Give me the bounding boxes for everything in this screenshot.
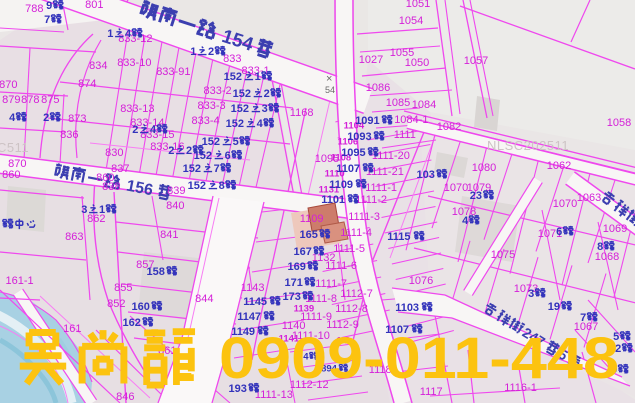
svg-text:874: 874 <box>78 78 96 90</box>
svg-text:7: 7 <box>44 14 50 26</box>
svg-text:1111-4: 1111-4 <box>340 227 372 239</box>
svg-text:1112-7: 1112-7 <box>340 288 373 300</box>
svg-text:152: 152 <box>188 180 206 192</box>
svg-text:2: 2 <box>186 145 192 157</box>
svg-text:3: 3 <box>262 103 268 115</box>
svg-text:1085: 1085 <box>386 97 410 109</box>
svg-text:161: 161 <box>63 323 81 335</box>
svg-text:1080: 1080 <box>472 162 496 174</box>
svg-text:2: 2 <box>264 88 270 100</box>
svg-text:7: 7 <box>214 163 220 175</box>
svg-text:833-4: 833-4 <box>192 115 220 127</box>
svg-text:4: 4 <box>257 118 264 130</box>
svg-text:1: 1 <box>190 46 196 58</box>
svg-text:839: 839 <box>167 185 185 197</box>
svg-text:4: 4 <box>9 112 16 124</box>
svg-text:4: 4 <box>462 215 469 227</box>
svg-text:NLSC202511: NLSC202511 <box>487 138 569 153</box>
svg-text:7: 7 <box>580 312 586 324</box>
svg-text:1109: 1109 <box>329 179 353 191</box>
svg-text:840: 840 <box>166 200 184 212</box>
svg-text:870: 870 <box>0 79 17 91</box>
svg-text:860: 860 <box>96 172 114 184</box>
svg-text:×: × <box>326 73 332 85</box>
svg-text:4: 4 <box>150 124 157 136</box>
svg-text:833-91: 833-91 <box>156 66 190 78</box>
svg-text:152: 152 <box>194 150 212 162</box>
svg-text:8: 8 <box>219 180 225 192</box>
svg-text:1112-8: 1112-8 <box>335 303 368 315</box>
svg-text:1: 1 <box>99 204 105 216</box>
svg-text:833: 833 <box>223 53 241 65</box>
svg-text:5: 5 <box>233 136 239 148</box>
svg-text:836: 836 <box>60 129 78 141</box>
svg-text:1058: 1058 <box>607 117 631 129</box>
svg-text:833-2: 833-2 <box>204 85 232 97</box>
svg-text:173: 173 <box>283 291 301 303</box>
svg-text:1111: 1111 <box>394 129 416 141</box>
svg-text:1111-2: 1111-2 <box>355 194 387 206</box>
svg-text:6: 6 <box>225 150 231 162</box>
svg-text:2: 2 <box>43 112 49 124</box>
svg-text:834: 834 <box>89 60 107 72</box>
svg-text:878: 878 <box>21 94 39 106</box>
svg-text:C511: C511 <box>0 140 29 155</box>
svg-text:152: 152 <box>233 88 251 100</box>
svg-text:833-13: 833-13 <box>120 103 154 115</box>
svg-text:1069: 1069 <box>603 223 627 235</box>
svg-text:54: 54 <box>325 85 335 95</box>
svg-text:0909-011-448: 0909-011-448 <box>219 326 619 391</box>
svg-text:1147: 1147 <box>237 311 261 323</box>
svg-text:1111-1: 1111-1 <box>365 182 397 194</box>
svg-text:1: 1 <box>255 71 261 83</box>
svg-text:1050: 1050 <box>405 57 429 69</box>
svg-text:4: 4 <box>125 28 132 40</box>
svg-text:1115: 1115 <box>387 231 410 243</box>
svg-text:1051: 1051 <box>406 0 430 10</box>
svg-text:1093: 1093 <box>347 131 371 143</box>
svg-text:1070: 1070 <box>444 182 468 194</box>
svg-text:1107: 1107 <box>336 163 360 175</box>
svg-text:1073: 1073 <box>514 283 538 295</box>
svg-text:860: 860 <box>2 169 20 181</box>
svg-text:830: 830 <box>105 147 123 159</box>
svg-text:1062: 1062 <box>547 160 571 172</box>
svg-text:1084-1: 1084-1 <box>394 114 428 126</box>
svg-text:9: 9 <box>46 0 52 12</box>
svg-text:2: 2 <box>208 46 214 58</box>
svg-text:852: 852 <box>107 298 125 310</box>
svg-text:1086: 1086 <box>366 82 390 94</box>
svg-text:1027: 1027 <box>359 54 383 66</box>
svg-text:875: 875 <box>41 94 59 106</box>
svg-text:6: 6 <box>556 226 562 238</box>
svg-text:161-1: 161-1 <box>6 275 34 287</box>
svg-text:1111-5: 1111-5 <box>333 243 365 255</box>
svg-text:1: 1 <box>107 28 113 40</box>
svg-text:165: 165 <box>300 229 318 241</box>
svg-text:2: 2 <box>168 145 174 157</box>
svg-text:879: 879 <box>2 94 20 106</box>
svg-text:1095: 1095 <box>341 147 365 159</box>
svg-text:8: 8 <box>597 241 603 253</box>
svg-text:1145: 1145 <box>243 296 267 308</box>
svg-text:846: 846 <box>116 391 134 403</box>
svg-text:1063: 1063 <box>577 192 601 204</box>
svg-text:1091: 1091 <box>355 115 379 127</box>
svg-text:152: 152 <box>226 118 244 130</box>
svg-text:1070: 1070 <box>553 198 577 210</box>
svg-text:841: 841 <box>160 229 178 241</box>
svg-text:863: 863 <box>65 231 83 243</box>
svg-text:844: 844 <box>195 293 213 305</box>
svg-text:1143: 1143 <box>241 282 265 294</box>
svg-text:1084: 1084 <box>412 99 436 111</box>
svg-text:873: 873 <box>68 113 86 125</box>
svg-text:19: 19 <box>548 301 560 313</box>
svg-text:152: 152 <box>224 71 242 83</box>
svg-text:1101: 1101 <box>321 194 345 206</box>
svg-text:801: 801 <box>85 0 103 11</box>
svg-text:1054: 1054 <box>399 15 423 27</box>
svg-text:158: 158 <box>147 266 165 278</box>
svg-text:160: 160 <box>132 301 150 313</box>
svg-text:833-10: 833-10 <box>117 57 151 69</box>
svg-text:152: 152 <box>231 103 249 115</box>
svg-text:103: 103 <box>417 169 435 181</box>
svg-text:1103: 1103 <box>395 302 419 314</box>
svg-text:788: 788 <box>25 3 43 15</box>
svg-text:1076: 1076 <box>409 275 433 287</box>
svg-text:3: 3 <box>81 204 87 216</box>
svg-text:152: 152 <box>183 163 201 175</box>
svg-text:171: 171 <box>285 277 303 289</box>
svg-text:855: 855 <box>114 282 132 294</box>
svg-text:1111-3: 1111-3 <box>348 211 380 223</box>
svg-text:152: 152 <box>202 136 220 148</box>
svg-text:167: 167 <box>294 246 312 258</box>
svg-text:1082: 1082 <box>437 121 461 133</box>
svg-text:162: 162 <box>123 317 141 329</box>
svg-text:1075: 1075 <box>491 249 515 261</box>
svg-text:23: 23 <box>470 190 482 202</box>
svg-text:169: 169 <box>288 261 306 273</box>
svg-text:2: 2 <box>132 124 138 136</box>
svg-text:3: 3 <box>528 288 534 300</box>
svg-text:1109: 1109 <box>300 213 324 225</box>
svg-text:1057: 1057 <box>464 55 488 67</box>
svg-text:1168: 1168 <box>290 107 314 119</box>
svg-text:833-3: 833-3 <box>198 100 226 112</box>
